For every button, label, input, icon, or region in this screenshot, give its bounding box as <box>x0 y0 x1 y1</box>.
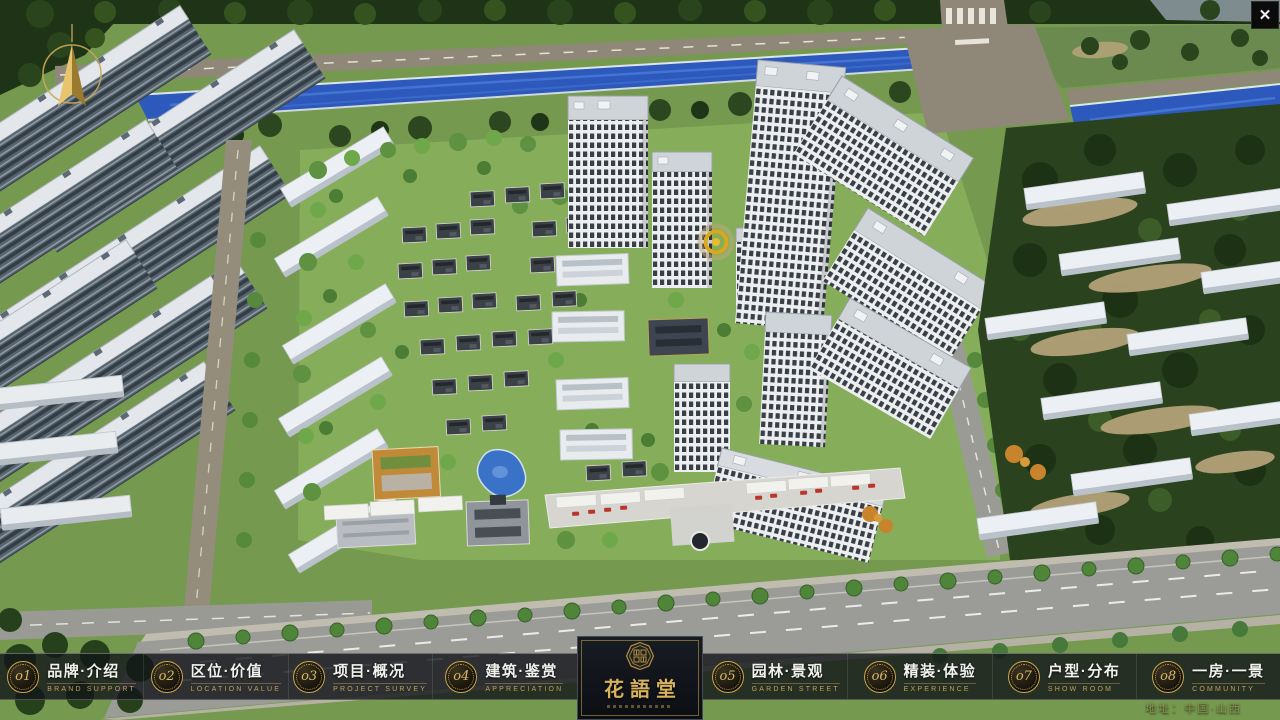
nav-item-architecture[interactable]: o4 建筑·鉴赏 APPRECIATION <box>432 654 576 699</box>
nav-group-left: o1 品牌·介绍 BRAND SUPPORT o2 区位·价值 LOCATION… <box>0 654 576 699</box>
nav-item-brand-intro[interactable]: o1 品牌·介绍 BRAND SUPPORT <box>0 654 143 699</box>
item-number-badge: o1 <box>7 661 39 693</box>
logo-subtext-line <box>607 705 673 708</box>
sales-presentation-screen: ✕ o1 品牌·介绍 BRAND SUPPORT o2 区位·价值 LOCATI… <box>0 0 1280 720</box>
nav-item-sublabel: SHOW ROOM <box>1048 683 1121 693</box>
nav-item-sublabel: COMMUNITY <box>1192 683 1265 693</box>
item-number-badge: o7 <box>1008 661 1040 693</box>
nav-item-label: 建筑·鉴赏 <box>485 660 558 681</box>
item-number-badge: o6 <box>864 661 896 693</box>
project-address: 地址：中国·山西 <box>1145 700 1242 716</box>
item-number-badge: o3 <box>293 661 325 693</box>
nav-item-label: 区位·价值 <box>191 660 264 681</box>
item-number-badge: o2 <box>151 661 183 693</box>
nav-item-garden-landscape[interactable]: o5 园林·景观 GARDEN STREET <box>704 654 847 699</box>
item-number-badge: o8 <box>1152 661 1184 693</box>
nav-item-project-survey[interactable]: o3 项目·概况 PROJECT SURVEY <box>288 654 432 699</box>
nav-item-sublabel: BRAND SUPPORT <box>47 683 136 693</box>
nav-group-right: o5 园林·景观 GARDEN STREET o6 精装·体验 EXPERIEN… <box>704 654 1280 699</box>
right-residential-rows <box>977 104 1280 560</box>
brand-logo-title: 花語堂 <box>598 673 682 702</box>
aerial-masterplan-render <box>0 0 1280 720</box>
nav-item-label: 一房·一景 <box>1192 660 1265 681</box>
nav-item-room-scene[interactable]: o8 一房·一景 COMMUNITY <box>1136 654 1280 699</box>
nav-item-label: 精装·体验 <box>904 660 977 681</box>
nav-item-label: 园林·景观 <box>752 660 825 681</box>
nav-item-location-value[interactable]: o2 区位·价值 LOCATION VALUE <box>143 654 287 699</box>
nav-item-sublabel: LOCATION VALUE <box>191 683 281 693</box>
nav-item-label: 户型·分布 <box>1048 660 1121 681</box>
nav-item-label: 项目·概况 <box>333 660 406 681</box>
item-number-badge: o5 <box>712 661 744 693</box>
nav-item-sublabel: GARDEN STREET <box>752 683 840 693</box>
nav-item-sublabel: APPRECIATION <box>485 683 563 693</box>
logo-inner-frame: 花語堂 <box>581 640 699 716</box>
nav-item-label: 品牌·介绍 <box>47 660 120 681</box>
brand-seal-icon <box>625 641 655 671</box>
nav-item-floorplan-distribution[interactable]: o7 户型·分布 SHOW ROOM <box>992 654 1136 699</box>
entrance-plaza-circle <box>691 532 709 550</box>
item-number-badge: o4 <box>445 661 477 693</box>
brand-logo-panel[interactable]: 花語堂 <box>577 636 703 720</box>
nav-item-interior-experience[interactable]: o6 精装·体验 EXPERIENCE <box>847 654 991 699</box>
nav-item-sublabel: PROJECT SURVEY <box>333 683 427 693</box>
close-button[interactable]: ✕ <box>1251 1 1279 29</box>
nav-item-sublabel: EXPERIENCE <box>904 683 977 693</box>
